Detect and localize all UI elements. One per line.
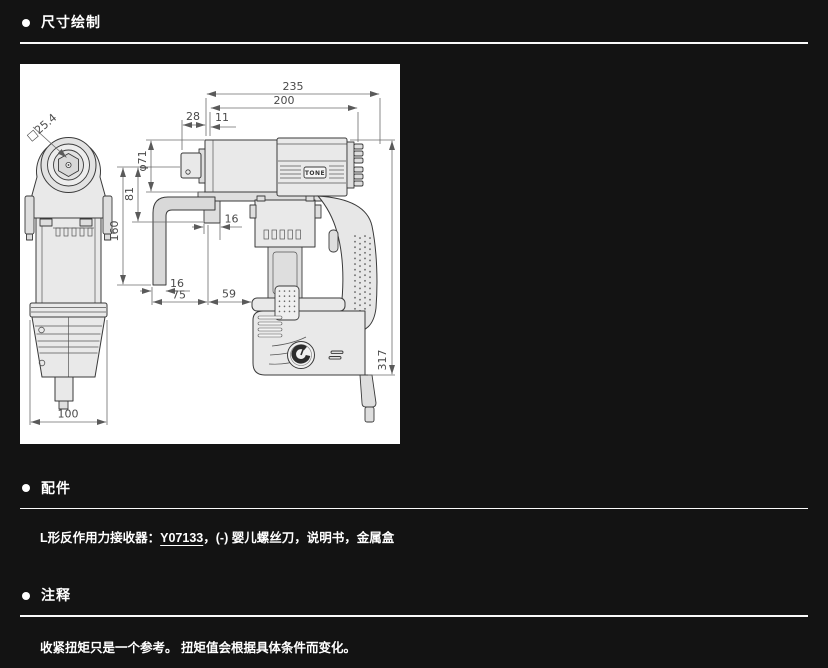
section-notes: 注释 收紧扭矩只是一个参考。 扭矩值会根据具体条件而变化。: [0, 547, 828, 657]
section-accessories: 配件 L形反作用力接收器：Y07133，(-) 婴儿螺丝刀，说明书，金属盒: [0, 444, 828, 548]
square-drive-side: [181, 153, 201, 178]
reaction-arm: [153, 197, 215, 285]
section-title-notes: 注释: [41, 587, 71, 604]
section-dimensional-drawing: 尺寸绘制: [0, 0, 828, 444]
front-view: [25, 137, 112, 409]
gear-case: [205, 140, 277, 192]
dim-plate-to-body: 59: [222, 287, 236, 300]
accessories-text: L形反作用力接收器：Y07133，(-) 婴儿螺丝刀，说明书，金属盒: [40, 530, 788, 547]
brand-logo-text: TONE: [305, 170, 325, 177]
accessories-rest: ，(-) 婴儿螺丝刀，说明书，金属盒: [203, 531, 394, 545]
bullet-icon: [22, 19, 30, 27]
section-divider: [20, 615, 808, 617]
technical-drawing-svg: TONE: [20, 64, 400, 444]
trigger: [329, 230, 338, 252]
dim-front-width: 100: [58, 407, 79, 420]
section-divider: [20, 508, 808, 510]
section-divider: [20, 42, 808, 44]
section-title-dimensional-drawing: 尺寸绘制: [41, 14, 101, 31]
dim-overall-length: 235: [283, 80, 304, 93]
section-header: 注释: [0, 547, 828, 604]
dim-axis-to-plate: 81: [123, 187, 136, 201]
bullet-icon: [22, 484, 30, 492]
dim-arm-reach: 75: [172, 288, 186, 301]
dimension-drawing: TONE: [20, 64, 400, 444]
dim-front-offset: 11: [215, 111, 229, 124]
dim-plate-width: 16: [225, 212, 239, 225]
section-title-accessories: 配件: [41, 480, 71, 497]
bullet-icon: [22, 592, 30, 600]
dim-overall-height: 317: [376, 349, 389, 370]
notes-text: 收紧扭矩只是一个参考。 扭矩值会根据具体条件而变化。: [40, 640, 788, 657]
dim-square-drive: □25.4: [24, 111, 59, 143]
accessory-part-link[interactable]: Y07133: [160, 531, 203, 545]
latch-pad: [275, 286, 299, 320]
dim-gear-diameter: φ71: [136, 150, 149, 171]
dim-housing-length: 200: [274, 94, 295, 107]
dim-arm-drop: 160: [108, 220, 121, 241]
section-header: 配件: [0, 444, 828, 497]
accessories-label: L形反作用力接收器：: [40, 531, 160, 545]
side-view: TONE: [153, 138, 377, 422]
dim-drive-length: 28: [186, 110, 200, 123]
section-header: 尺寸绘制: [0, 0, 828, 31]
power-cord: [360, 375, 376, 407]
